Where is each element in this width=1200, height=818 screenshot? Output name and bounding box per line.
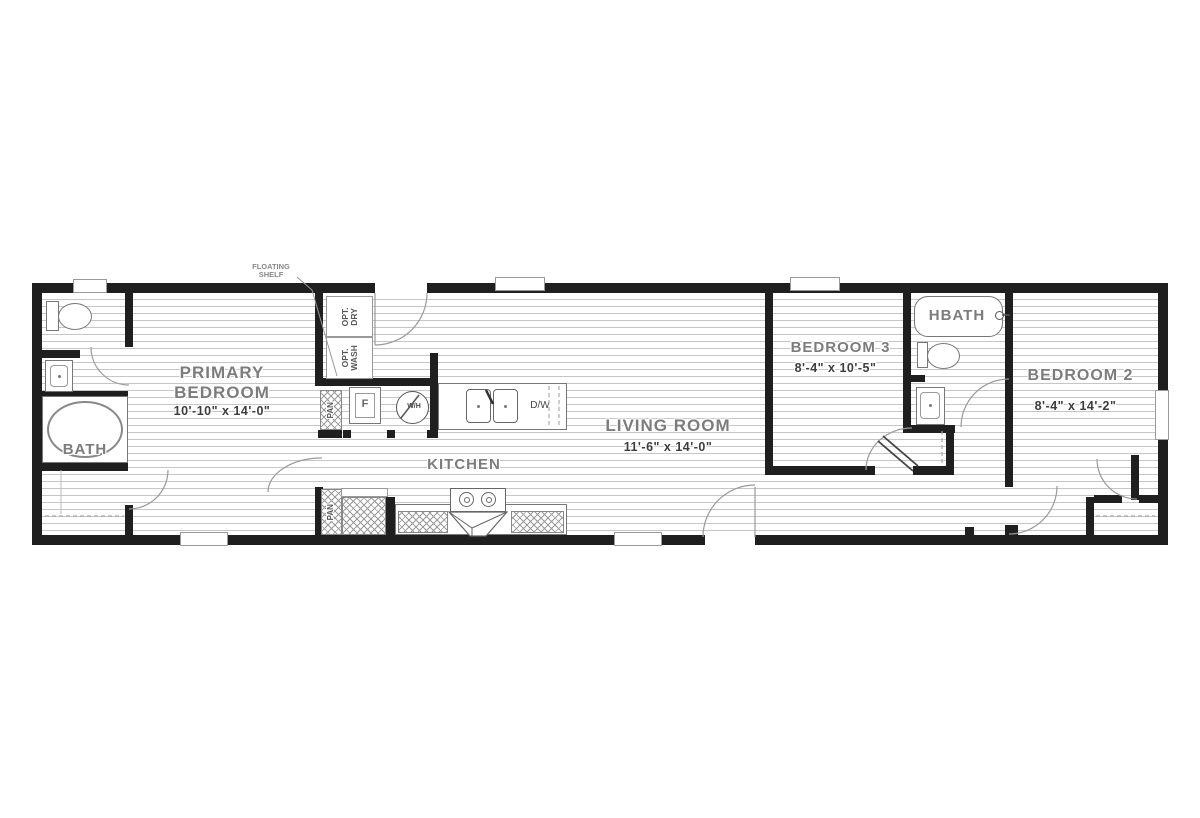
wall	[1086, 497, 1094, 535]
window	[1155, 390, 1169, 440]
base-cabinet	[398, 511, 448, 533]
bedroom2-label: BEDROOM 2	[1018, 367, 1143, 385]
wall	[387, 430, 395, 438]
wall	[42, 350, 80, 358]
bath-label: BATH	[48, 441, 122, 458]
wall	[430, 353, 438, 438]
living-room-dims: 11'-6" x 14'-0"	[598, 440, 738, 454]
kitchen-label: KITCHEN	[408, 456, 520, 473]
wall	[315, 378, 438, 386]
wall	[315, 293, 323, 386]
floorplan-page: OPT. DRY OPT. WASH FLOATING SHELF PAN F …	[0, 0, 1200, 818]
opt-dryer-label-wrap: OPT. DRY	[326, 296, 373, 337]
opt-dryer-label: OPT. DRY	[341, 304, 359, 330]
hbath-tub-faucet	[995, 311, 1004, 320]
exterior-wall-top	[32, 283, 1168, 293]
pantry-lower-label: PAN	[327, 504, 335, 520]
opt-washer-label: OPT. WASH	[341, 343, 359, 373]
hbath-label: HBATH	[922, 307, 992, 324]
opt-washer-label-wrap: OPT. WASH	[326, 337, 373, 379]
toilet-bowl	[58, 303, 92, 330]
sink-drain	[477, 405, 480, 408]
wall	[125, 293, 133, 347]
wall	[1139, 495, 1158, 503]
wall	[386, 497, 395, 535]
window	[180, 532, 228, 546]
bedroom3-label: BEDROOM 3	[778, 339, 903, 356]
pantry-lower-label-wrap: PAN	[321, 489, 342, 535]
wall	[765, 466, 875, 475]
wall	[903, 375, 925, 382]
wall	[903, 293, 911, 432]
wall	[125, 505, 133, 535]
fridge-label: F	[355, 398, 375, 410]
pantry-upper-label-wrap: PAN	[320, 390, 342, 430]
wall	[343, 430, 351, 438]
window	[614, 532, 662, 546]
pantry-upper-label: PAN	[327, 402, 335, 418]
window	[73, 279, 107, 293]
back-door-opening	[375, 283, 427, 293]
wall	[946, 427, 954, 475]
primary-bedroom-dims: 10'-10" x 14'-0"	[147, 404, 297, 418]
bedroom2-dims: 8'-4" x 14'-2"	[1013, 399, 1138, 413]
window	[495, 277, 545, 291]
wall	[427, 430, 438, 438]
wall	[1094, 495, 1122, 503]
exterior-wall-left	[32, 283, 42, 545]
wall	[318, 430, 342, 438]
bedroom3-dims: 8'-4" x 10'-5"	[773, 361, 898, 375]
base-cabinet	[342, 497, 386, 535]
wall	[765, 293, 773, 473]
dishwasher-label: D/W	[520, 400, 560, 411]
sink-drain	[504, 405, 507, 408]
burner	[486, 497, 492, 503]
wall	[1005, 293, 1013, 487]
wall	[903, 425, 955, 433]
window	[790, 277, 840, 291]
burner	[464, 497, 470, 503]
primary-bedroom-label: PRIMARY BEDROOM	[152, 363, 292, 402]
base-cabinet	[511, 511, 564, 533]
water-heater-label: W/H	[399, 403, 429, 410]
sink-drain	[58, 375, 61, 378]
wall	[42, 463, 128, 471]
front-door-opening	[705, 535, 755, 545]
toilet-bowl	[927, 343, 960, 369]
wall	[1005, 525, 1018, 535]
living-room-label: LIVING ROOM	[593, 416, 743, 436]
sink-drain	[929, 404, 932, 407]
floating-shelf-note: FLOATING SHELF	[240, 263, 302, 280]
counter-backsplash	[341, 488, 388, 497]
wall	[965, 527, 974, 535]
wall	[1131, 455, 1139, 500]
